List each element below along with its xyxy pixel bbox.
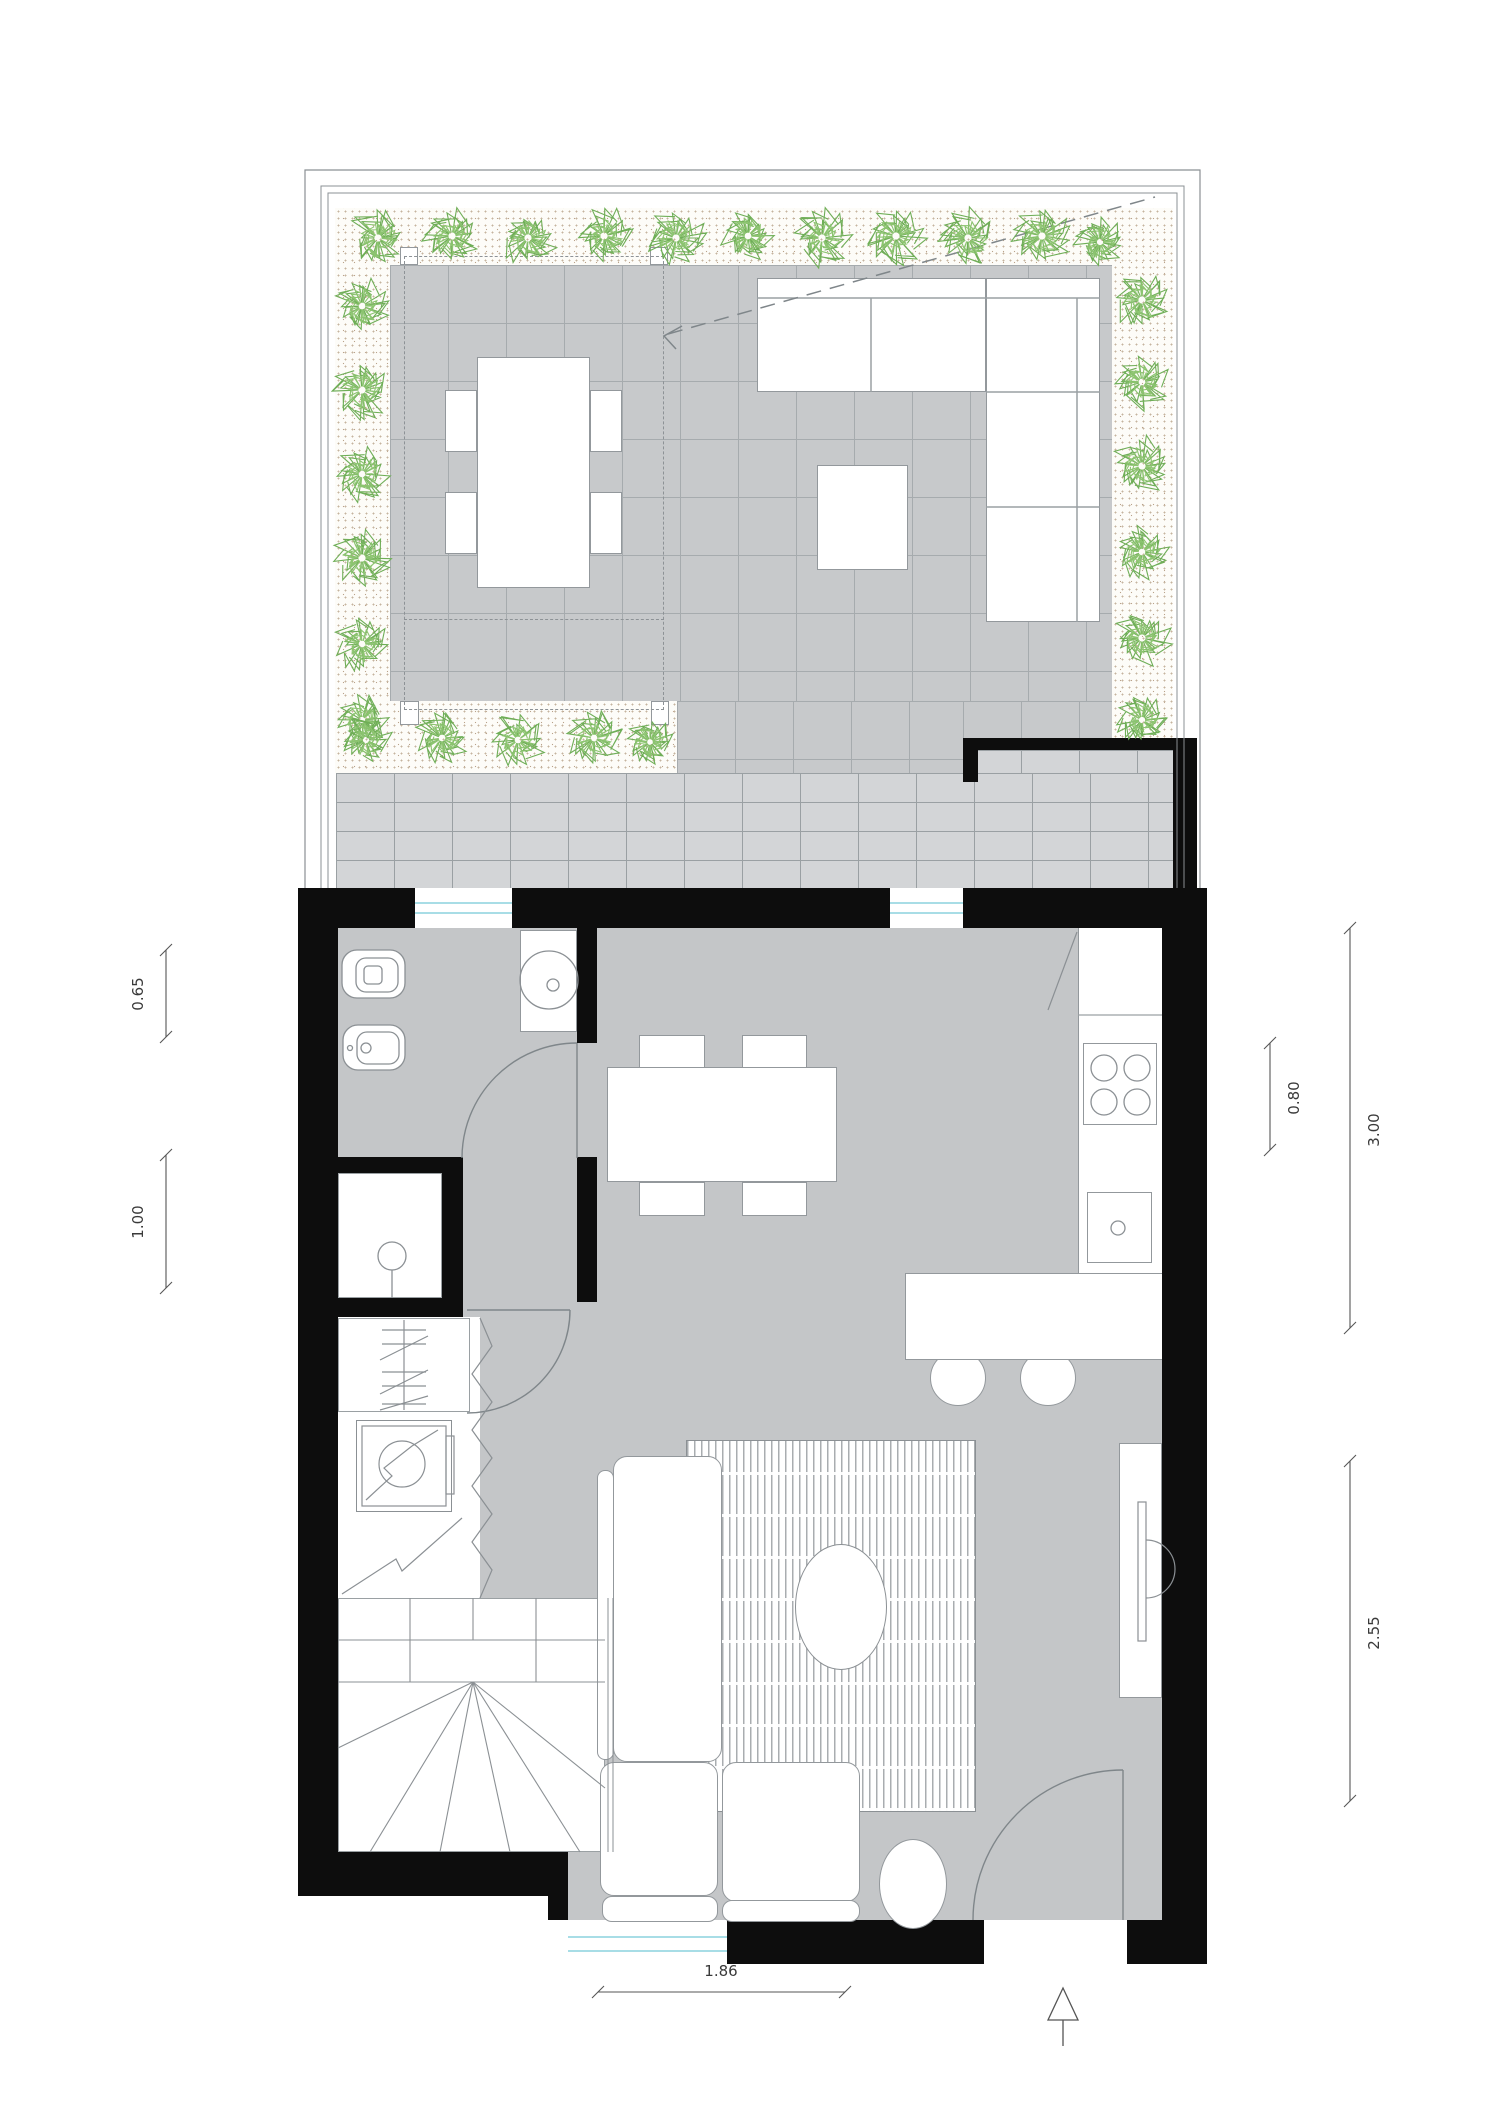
washbasin [520,951,578,1009]
plant-icon [567,711,622,763]
floor-plan-canvas: 0.65 1.00 0.80 3.00 2.55 1.86 [0,0,1500,2123]
shower-head [378,1242,406,1298]
bathroom-door [462,1043,577,1158]
dimension-label-186: 1.86 [681,1962,761,1980]
plant-icon [628,722,673,764]
hall-door [467,1310,570,1413]
tall-unit-diagonal [1048,932,1077,1010]
parapet-outer [305,170,1200,888]
linework-overlay [0,0,1500,2123]
plant-icon [735,219,765,252]
plant-icon [416,713,466,763]
parapet-inner-1 [321,186,1184,888]
closet-hanger-rail [380,1320,428,1410]
plant-icon [1115,356,1168,411]
sink-drain [1111,1221,1125,1235]
dimension-label-300: 3.00 [1365,1102,1383,1158]
dimension-label-065: 0.65 [129,966,147,1022]
dimension-label-255: 2.55 [1365,1605,1383,1661]
stair-break-line [342,1518,462,1594]
entry-door [973,1770,1123,1920]
bidet [343,1025,405,1070]
plant-icon [1117,698,1167,739]
roof-slope-dashed-arrow [664,197,1155,349]
plant-icon [334,530,392,587]
plant-icon [868,211,927,265]
garden-plants [332,207,1172,766]
plant-icon [1120,526,1169,580]
plant-icon [877,222,911,253]
plant-icon [938,207,990,264]
plant-icon [721,213,774,259]
plant-icon [794,208,852,268]
plant-icon [579,208,633,261]
plant-icon [335,618,387,671]
washing-machine-symbol [362,1426,454,1506]
plant-icon [492,715,544,766]
toilet [342,950,405,998]
winder-stair [338,1598,613,1852]
dimension-label-100: 1.00 [129,1194,147,1250]
plant-icon [593,219,623,251]
stove-burners [1091,1055,1150,1115]
tv-screen [1138,1502,1175,1641]
dimension-label-080: 0.80 [1285,1070,1303,1126]
dimension-lines [160,922,1356,1998]
north-arrow-icon [1048,1988,1078,2046]
plant-icon [337,447,390,503]
accordion-door [472,1318,492,1598]
